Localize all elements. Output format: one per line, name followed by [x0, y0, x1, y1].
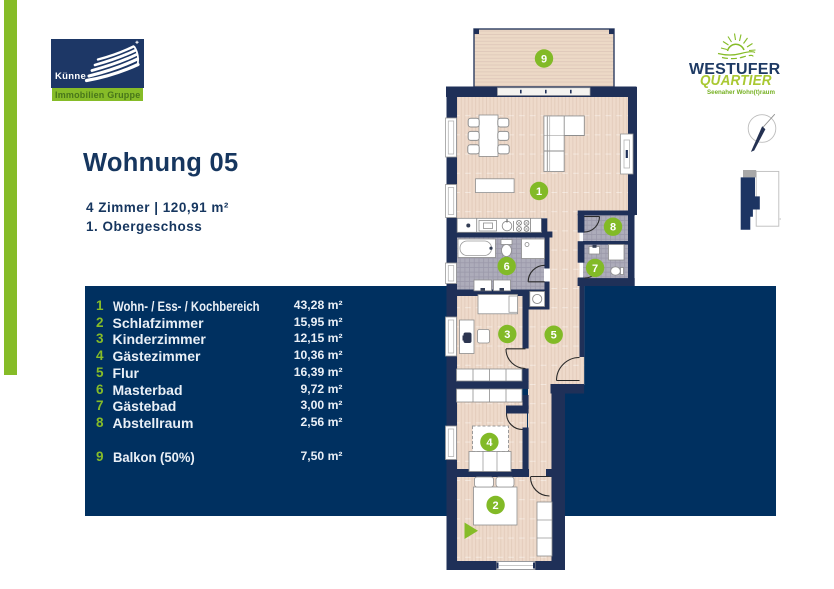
svg-text:4: 4 — [486, 437, 493, 449]
svg-text:1: 1 — [536, 186, 542, 198]
svg-text:9: 9 — [541, 54, 547, 66]
svg-text:7: 7 — [592, 263, 598, 275]
svg-text:3: 3 — [504, 329, 510, 341]
svg-text:6: 6 — [504, 261, 510, 273]
svg-text:5: 5 — [551, 330, 557, 342]
svg-text:2: 2 — [493, 500, 499, 512]
svg-text:8: 8 — [610, 222, 616, 234]
